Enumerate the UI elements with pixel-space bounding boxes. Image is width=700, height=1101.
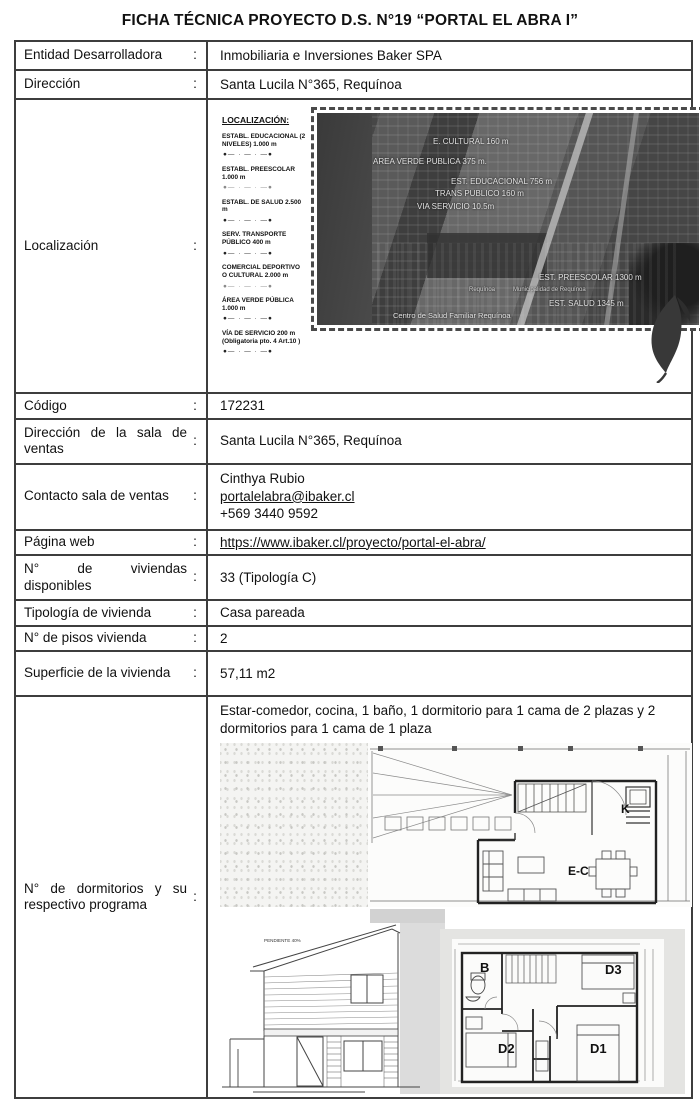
- distance-line-icon: ●— · — · —●: [223, 217, 306, 225]
- row-label-tipologia: Tipología de vivienda :: [16, 601, 208, 625]
- value-text: Santa Lucila N°365, Requínoa: [220, 432, 683, 450]
- map-label: EST. SALUD 1345 m: [549, 299, 624, 309]
- distance-line-icon: ●— · — · —●: [223, 151, 306, 159]
- row-label-web: Página web :: [16, 531, 208, 555]
- satellite-map-image: E. CULTURAL 160 m AREA VERDE PUBLICA 375…: [317, 113, 699, 325]
- map-label: EST. EDUCACIONAL 756 m: [451, 177, 552, 187]
- label-text: Dirección de la sala de ventas: [24, 425, 187, 458]
- table-row: N° de dormitorios y su respectivo progra…: [16, 695, 691, 1097]
- row-label-superficie: Superficie de la vivienda :: [16, 652, 208, 695]
- colon-separator: :: [191, 433, 199, 449]
- table-row: Entidad Desarrolladora : Inmobiliaria e …: [16, 42, 691, 69]
- table-row: Superficie de la vivienda : 57,11 m2: [16, 650, 691, 695]
- contact-name: Cinthya Rubio: [220, 470, 683, 488]
- table-row: Dirección : Santa Lucila N°365, Requínoa: [16, 69, 691, 98]
- label-text: Entidad Desarrolladora: [24, 47, 187, 63]
- first-floor-plan-drawing: K E-C: [368, 743, 692, 907]
- distance-line-icon: ●— · — · —●: [223, 283, 306, 291]
- value-text: 172231: [220, 397, 683, 415]
- distance-line-icon: ●— · — · —●: [223, 250, 306, 258]
- page-title: FICHA TÉCNICA PROYECTO D.S. N°19 “PORTAL…: [14, 12, 686, 30]
- legend-item: ESTABL. PREESCOLAR 1.000 m: [222, 166, 306, 181]
- colon-separator: :: [191, 47, 199, 63]
- colon-separator: :: [191, 534, 199, 550]
- row-label-entidad: Entidad Desarrolladora :: [16, 42, 208, 69]
- second-floor-plan-drawing: B D3 D2 D1: [440, 929, 685, 1094]
- colon-separator: :: [191, 76, 199, 92]
- map-field-dark: [317, 113, 372, 325]
- kitchen-label: K: [621, 802, 630, 816]
- colon-separator: :: [191, 569, 199, 585]
- scanned-paper-texture: [220, 743, 368, 907]
- row-value-contacto: Cinthya Rubio portalelabra@ibaker.cl +56…: [208, 465, 691, 529]
- value-text: Inmobiliaria e Inversiones Baker SPA: [220, 47, 683, 65]
- distance-line-icon: ●— · — · —●: [223, 315, 306, 323]
- table-row: Localización : LOCALIZACIÓN: ESTABL. EDU…: [16, 98, 691, 392]
- bottom-images: PENDIENTE 40%: [220, 909, 692, 1094]
- label-text: Página web: [24, 534, 187, 550]
- map-legend: LOCALIZACIÓN: ESTABL. EDUCACIONAL (2 NIV…: [220, 107, 309, 363]
- label-text: Contacto sala de ventas: [24, 488, 187, 504]
- value-text: Casa pareada: [220, 604, 683, 622]
- table-row: Tipología de vivienda : Casa pareada: [16, 599, 691, 625]
- bath-label: B: [480, 960, 489, 975]
- legend-item: SERV. TRANSPORTE PÚBLICO 400 m: [222, 231, 306, 246]
- row-value-superficie: 57,11 m2: [208, 652, 691, 695]
- colon-separator: :: [191, 398, 199, 414]
- row-label-codigo: Código :: [16, 394, 208, 418]
- colon-separator: :: [191, 238, 199, 254]
- row-label-contacto: Contacto sala de ventas :: [16, 465, 208, 529]
- table-row: Dirección de la sala de ventas : Santa L…: [16, 418, 691, 463]
- roof-slope-label: PENDIENTE 40%: [264, 938, 301, 943]
- map-label: E. CULTURAL 160 m: [433, 137, 509, 147]
- table-row: N° de pisos vivienda : 2: [16, 625, 691, 651]
- map-label: Requínoa: [469, 287, 495, 295]
- value-text: 33 (Tipología C): [220, 569, 683, 587]
- label-text: Tipología de vivienda: [24, 605, 187, 621]
- legend-title: LOCALIZACIÓN:: [222, 115, 306, 126]
- row-value-pisos: 2: [208, 627, 691, 651]
- row-value-direccion-sala: Santa Lucila N°365, Requínoa: [208, 420, 691, 463]
- bedroom2-label: D2: [498, 1041, 515, 1056]
- map-label: VIA SERVICIO 10.5m: [417, 202, 494, 212]
- label-text: N° de pisos vivienda: [24, 630, 187, 646]
- distance-line-icon: ●— · — · —●: [223, 348, 306, 356]
- map-label: TRANS PUBLICO 160 m: [435, 189, 524, 199]
- row-label-localizacion: Localización :: [16, 100, 208, 392]
- table-row: Página web : https://www.ibaker.cl/proye…: [16, 529, 691, 555]
- row-value-viviendas: 33 (Tipología C): [208, 556, 691, 599]
- row-label-direccion-sala: Dirección de la sala de ventas :: [16, 420, 208, 463]
- row-value-codigo: 172231: [208, 394, 691, 418]
- map-label: EST. PREESCOLAR 1300 m: [539, 273, 642, 283]
- legend-item: VÍA DE SERVICIO 200 m (Obligatoria pto. …: [222, 330, 306, 345]
- colon-separator: :: [191, 488, 199, 504]
- house-elevation-drawing: PENDIENTE 40%: [220, 909, 445, 1094]
- label-text: Superficie de la vivienda: [24, 665, 187, 681]
- colon-separator: :: [191, 605, 199, 621]
- leaf-icon: [641, 295, 693, 383]
- contact-email-link[interactable]: portalelabra@ibaker.cl: [220, 488, 683, 506]
- legend-item: COMERCIAL DEPORTIVO O CULTURAL 2.000 m: [222, 264, 306, 279]
- table-row: Contacto sala de ventas : Cinthya Rubio …: [16, 463, 691, 529]
- label-text: Localización: [24, 238, 187, 254]
- table-row: Código : 172231: [16, 392, 691, 418]
- colon-separator: :: [191, 630, 199, 646]
- first-floor-plan-image: K E-C: [220, 743, 692, 907]
- row-value-localizacion: LOCALIZACIÓN: ESTABL. EDUCACIONAL (2 NIV…: [208, 100, 700, 392]
- row-value-entidad: Inmobiliaria e Inversiones Baker SPA: [208, 42, 691, 69]
- bedroom1-label: D1: [590, 1041, 607, 1056]
- row-value-direccion: Santa Lucila N°365, Requínoa: [208, 71, 691, 98]
- row-label-viviendas: N° de viviendas disponibles :: [16, 556, 208, 599]
- contact-phone: +569 3440 9592: [220, 505, 683, 523]
- label-text: N° de viviendas disponibles: [24, 561, 187, 594]
- row-value-dormitorios: Estar-comedor, cocina, 1 baño, 1 dormito…: [208, 697, 700, 1097]
- legend-item: ESTABL. DE SALUD 2.500 m: [222, 199, 306, 214]
- table-row: N° de viviendas disponibles : 33 (Tipolo…: [16, 554, 691, 599]
- label-text: N° de dormitorios y su respectivo progra…: [24, 881, 187, 914]
- row-label-dormitorios: N° de dormitorios y su respectivo progra…: [16, 697, 208, 1097]
- map-label: Municipalidad de Requínoa: [513, 287, 586, 295]
- localization-figure: LOCALIZACIÓN: ESTABL. EDUCACIONAL (2 NIV…: [220, 103, 700, 389]
- legend-item: ÁREA VERDE PÚBLICA 1.000 m: [222, 297, 306, 312]
- living-dining-label: E-C: [568, 864, 589, 878]
- website-link[interactable]: https://www.ibaker.cl/proyecto/portal-el…: [220, 534, 683, 552]
- row-label-pisos: N° de pisos vivienda :: [16, 627, 208, 651]
- legend-item: ESTABL. EDUCACIONAL (2 NIVELES) 1.000 m: [222, 133, 306, 148]
- row-value-web: https://www.ibaker.cl/proyecto/portal-el…: [208, 531, 691, 555]
- label-text: Dirección: [24, 76, 187, 92]
- colon-separator: :: [191, 665, 199, 681]
- row-value-tipologia: Casa pareada: [208, 601, 691, 625]
- colon-separator: :: [191, 889, 199, 905]
- row-label-direccion: Dirección :: [16, 71, 208, 98]
- map-label: Centro de Salud Familiar Requínoa: [393, 311, 511, 321]
- label-text: Código: [24, 398, 187, 414]
- map-label: AREA VERDE PUBLICA 375 m.: [373, 157, 487, 167]
- spec-table: Entidad Desarrolladora : Inmobiliaria e …: [14, 40, 693, 1099]
- value-text: 57,11 m2: [220, 665, 683, 683]
- distance-line-icon: ●— · — · —●: [223, 184, 306, 192]
- bedroom3-label: D3: [605, 962, 622, 977]
- value-text: 2: [220, 630, 683, 648]
- program-description: Estar-comedor, cocina, 1 baño, 1 dormito…: [220, 702, 692, 737]
- value-text: Santa Lucila N°365, Requínoa: [220, 76, 683, 94]
